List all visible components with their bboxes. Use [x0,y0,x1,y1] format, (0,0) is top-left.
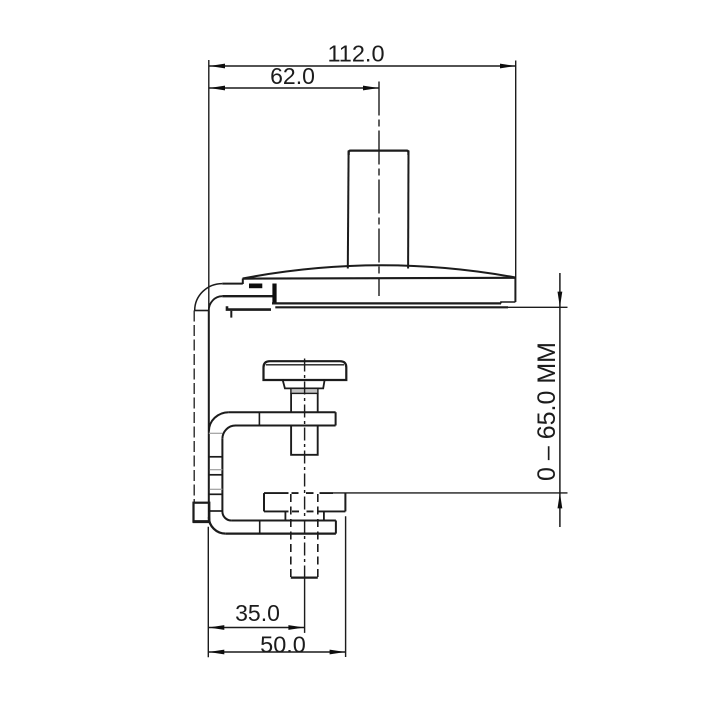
svg-text:0 – 65.0 MM: 0 – 65.0 MM [533,342,561,481]
svg-text:35.0: 35.0 [235,600,280,626]
svg-text:112.0: 112.0 [327,41,384,67]
svg-text:62.0: 62.0 [270,63,315,89]
svg-text:50.0: 50.0 [260,632,306,658]
